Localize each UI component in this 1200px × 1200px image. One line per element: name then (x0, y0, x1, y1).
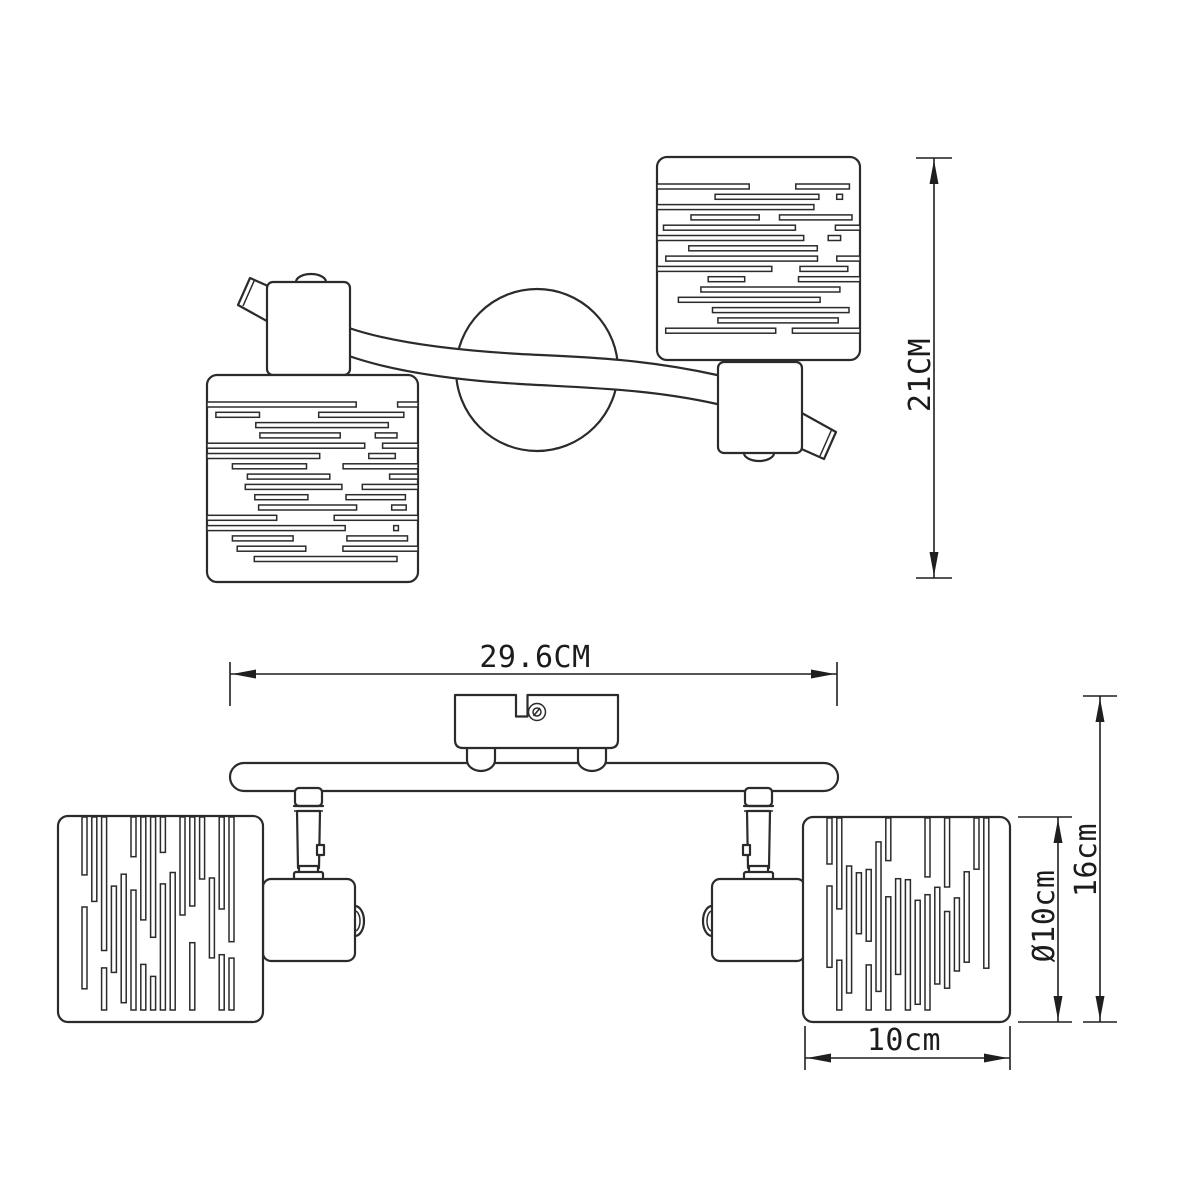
shade-slat (856, 873, 861, 934)
shade-slat (664, 225, 796, 230)
shade-slat (828, 236, 840, 241)
shade-slat (678, 297, 820, 302)
shade-slat (657, 205, 814, 210)
mount-foot-right (578, 748, 606, 771)
shade-slat (151, 817, 156, 937)
left-stem-setscrew (317, 845, 324, 855)
shade-slat (925, 818, 930, 877)
dim-16-arrow-up (1096, 698, 1105, 722)
shade-slat (935, 887, 940, 984)
shade-slat (92, 817, 97, 901)
shade-slat (708, 277, 745, 282)
dim-296-arrow-left (232, 670, 256, 679)
dim-d10-label: Ø10cm (1027, 870, 1062, 963)
right-shade-front-view (803, 817, 1010, 1022)
shade-slat (945, 818, 950, 887)
shade-slat (160, 884, 165, 1010)
right-stem (743, 788, 773, 881)
shade-slat (896, 879, 901, 975)
shade-slat (689, 246, 818, 251)
shade-slat (390, 474, 418, 479)
shade-slat (160, 817, 165, 852)
shade-slat (216, 412, 260, 417)
shade-slat (255, 495, 308, 500)
shade-slat (876, 842, 881, 992)
dim-21-arrow-up (930, 160, 939, 184)
shade-slat (111, 886, 116, 972)
shade-slat (247, 474, 329, 479)
shade-slat (151, 976, 156, 1010)
shade-slat (232, 464, 306, 469)
dim-10-arrow-right (984, 1054, 1008, 1063)
shade-slat (219, 955, 224, 1010)
shade-slat (905, 880, 910, 1010)
dim-21-arrow-down (930, 552, 939, 576)
dimension-shade-width: 10cm (805, 1023, 1010, 1070)
right-head-pivot-bump (744, 453, 774, 461)
shade-slat (847, 866, 852, 993)
dim-d10-arrow-down (1054, 996, 1063, 1020)
dim-16-arrow-down (1096, 996, 1105, 1020)
shade-slat (245, 484, 342, 489)
shade-slat (827, 886, 832, 967)
right-head-housing (718, 362, 802, 453)
shade-slat (200, 817, 205, 879)
left-stem (294, 788, 324, 881)
shade-slat (383, 443, 418, 448)
shade-slat (375, 433, 397, 438)
shade-slat (319, 412, 404, 417)
shade-slat (886, 897, 891, 1010)
left-stem-tube (297, 811, 320, 868)
shade-slat (207, 454, 320, 459)
ceiling-bracket (455, 695, 618, 748)
shade-slat (866, 965, 871, 1010)
shade-slat (141, 964, 146, 1010)
right-spot-head-top-view (718, 362, 836, 461)
shade-slat (334, 515, 418, 520)
shade-slat (837, 256, 860, 261)
dim-16-label: 16cm (1069, 823, 1104, 897)
shade-slat (229, 817, 234, 942)
shade-slat (796, 184, 850, 189)
dim-296-label: 29.6CM (479, 640, 590, 675)
shade-slat (207, 443, 365, 448)
shade-slat (170, 873, 175, 1011)
shade-slat (346, 495, 405, 500)
shade-slat (666, 256, 818, 261)
shade-slat (82, 817, 87, 875)
shade-slat (254, 557, 397, 562)
shade-slat (362, 484, 418, 489)
shade-slat (82, 907, 87, 989)
dim-10-arrow-left (807, 1054, 831, 1063)
shade-slat (207, 526, 345, 531)
shade-slat (945, 912, 950, 989)
left-spot-head-top-view (238, 274, 350, 375)
left-head-housing-front (263, 879, 355, 961)
shade-slat (915, 900, 920, 1004)
shade-slat (666, 328, 776, 333)
shade-slat (392, 505, 407, 510)
shade-slat (237, 546, 306, 551)
right-stem-setscrew (743, 845, 750, 855)
shade-slat (715, 194, 819, 199)
shade-slat (209, 878, 214, 958)
shade-slat (701, 287, 840, 292)
dimension-shade-diameter: Ø10cm (1018, 817, 1072, 1022)
shade-slat (657, 184, 749, 189)
left-head-pivot-bump (296, 274, 326, 282)
shade-slat (260, 433, 340, 438)
dimension-front-total-height: 16cm (1069, 696, 1117, 1022)
shade-slat (207, 402, 356, 407)
shade-slat (799, 277, 861, 282)
shade-slat (691, 215, 759, 220)
shade-slat (713, 308, 850, 313)
shade-slat (190, 817, 195, 906)
right-stem-tube (747, 811, 770, 868)
dim-d10-arrow-up (1054, 819, 1063, 843)
shade-slat (925, 895, 930, 1010)
shade-slat (131, 890, 136, 1010)
shade-slat (657, 236, 804, 241)
shade-slat (780, 215, 853, 220)
shade-slat (343, 464, 418, 469)
shade-slat (369, 454, 396, 459)
shade-slat (256, 423, 388, 428)
shade-slat (837, 194, 843, 199)
left-stem-neck (295, 788, 322, 806)
shade-slat (394, 526, 399, 531)
shade-slat (954, 898, 959, 971)
shade-slat (974, 818, 979, 869)
shade-slat (657, 266, 772, 271)
shade-slat (131, 817, 136, 857)
shade-slat (219, 817, 224, 909)
shade-slat (343, 546, 418, 551)
shade-slat (102, 968, 107, 1010)
shade-slat (964, 872, 969, 962)
dim-21-label: 21CM (903, 338, 938, 412)
shade-slat (180, 817, 185, 915)
shade-slat (837, 960, 842, 1010)
shade-slat (102, 817, 107, 951)
diagram-canvas: 21CM (0, 0, 1200, 1200)
shade-slat (827, 818, 832, 864)
track-bar (230, 763, 838, 791)
dimension-top-height: 21CM (903, 158, 952, 578)
shade-slat (866, 870, 871, 942)
shade-slat (232, 536, 293, 541)
left-shade-front-view (58, 816, 263, 1022)
shade-slat (259, 505, 357, 510)
shade-slat (207, 515, 277, 520)
spotlight-dimension-drawing: 21CM (0, 0, 1200, 1200)
shade-slat (190, 943, 195, 1010)
dim-296-arrow-right (811, 670, 835, 679)
shade-slat (886, 818, 891, 861)
shade-slat (837, 818, 842, 909)
shade-slat (141, 817, 146, 920)
shade-slat (398, 402, 418, 407)
right-spot-head-front-view (703, 879, 805, 961)
shade-slat (121, 874, 126, 1003)
shade-slat (835, 225, 860, 230)
shade-slat (984, 818, 989, 968)
mount-foot-left (467, 748, 495, 771)
front-view: 29.6CM 16cm Ø10cm 10cm (58, 640, 1117, 1070)
right-stem-neck (745, 788, 772, 806)
left-spot-head-front-view (263, 879, 364, 961)
left-shade-top-view (207, 375, 418, 582)
right-head-housing-front (712, 879, 805, 961)
shade-slat (800, 266, 848, 271)
shade-slat (347, 536, 408, 541)
shade-slat (229, 958, 234, 1010)
top-view: 21CM (207, 157, 952, 582)
shade-slat (792, 328, 860, 333)
right-shade-top-view (657, 157, 860, 360)
shade-slat (718, 318, 838, 323)
dim-10-label: 10cm (867, 1023, 941, 1058)
left-head-housing (267, 282, 350, 375)
